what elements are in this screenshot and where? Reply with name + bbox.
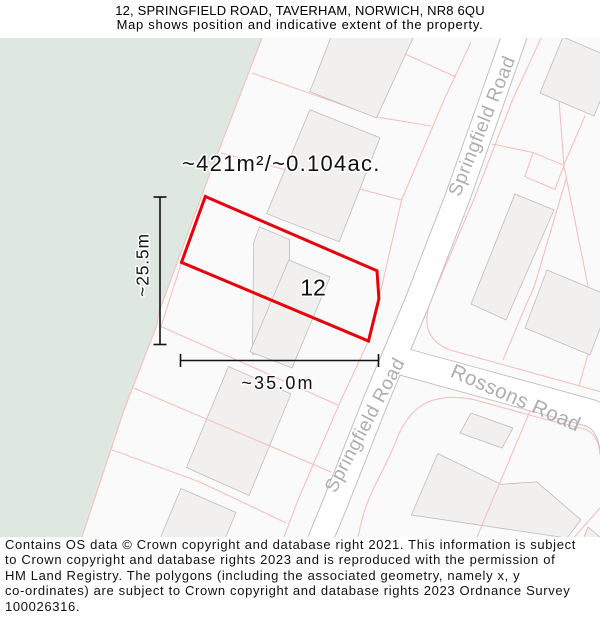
svg-text:~421m²/~0.104ac.: ~421m²/~0.104ac. <box>182 151 381 176</box>
svg-text:~25.5m: ~25.5m <box>133 233 153 297</box>
svg-text:12: 12 <box>300 275 326 301</box>
svg-text:~35.0m: ~35.0m <box>241 373 314 393</box>
